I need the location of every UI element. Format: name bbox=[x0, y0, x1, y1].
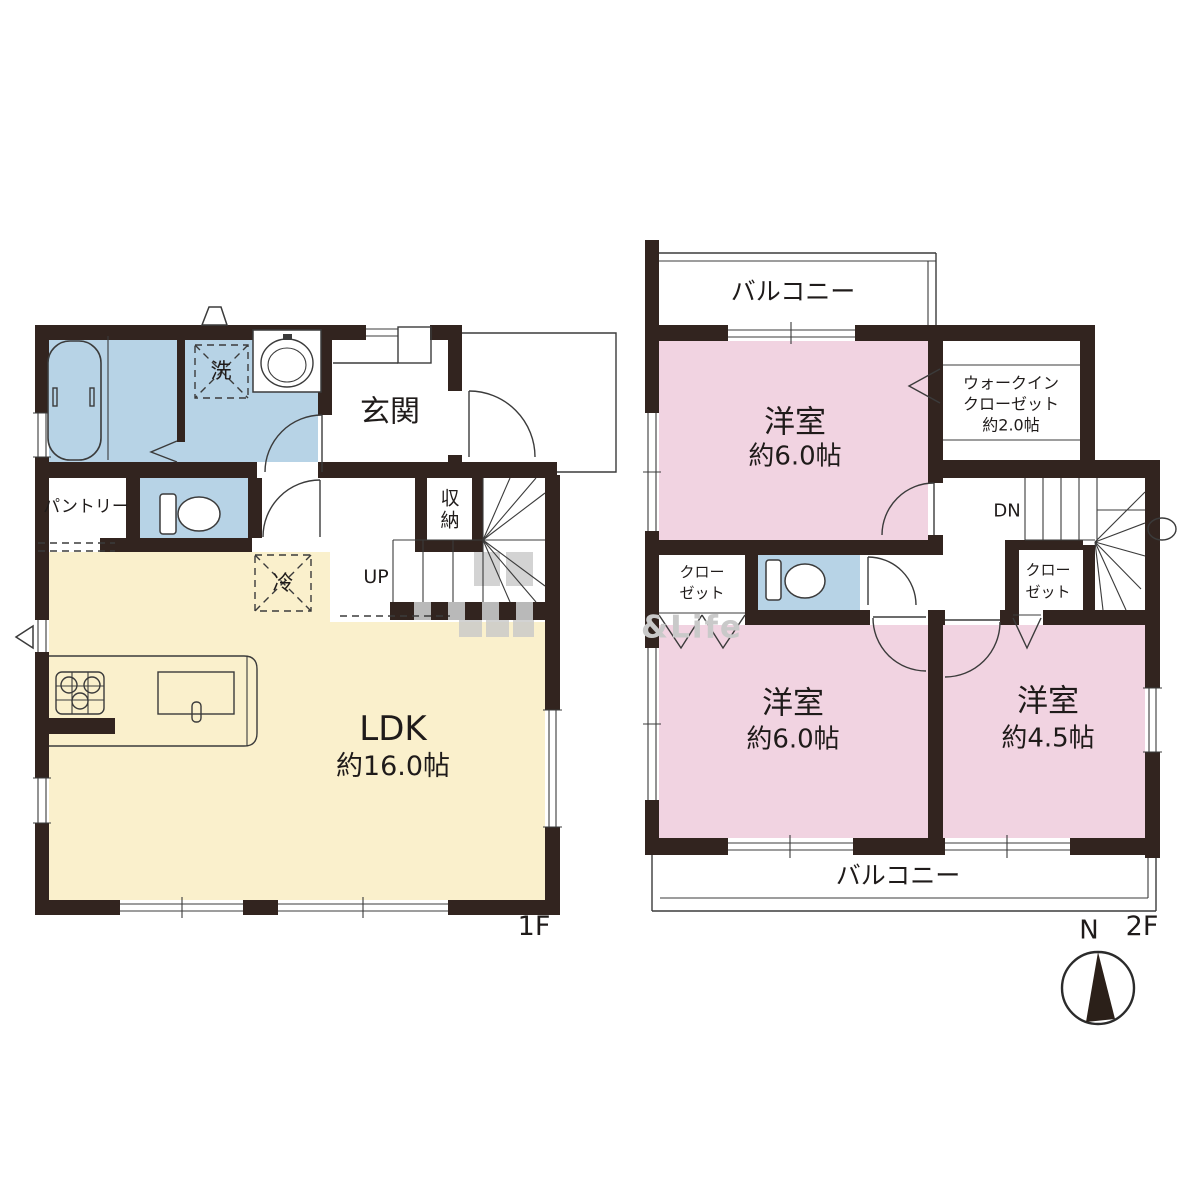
laundry-label: 洗 bbox=[211, 360, 232, 382]
floor1-plan bbox=[16, 307, 616, 918]
floor2-label: 2F bbox=[1126, 913, 1159, 941]
closet-left-label-line2: ゼット bbox=[679, 586, 724, 602]
ldk-size-label: 約16.0帖 bbox=[336, 753, 450, 781]
entrance-label: 玄関 bbox=[360, 396, 420, 428]
compass bbox=[1062, 952, 1134, 1024]
fridge-label: 冷 bbox=[273, 572, 294, 594]
entrance-porch bbox=[462, 333, 616, 472]
balcony-bottom-label: バルコニー bbox=[836, 863, 961, 889]
bathtub-icon bbox=[48, 336, 108, 460]
stairs-up-label: UP bbox=[363, 568, 388, 588]
room-br-size-label: 約4.5帖 bbox=[1001, 725, 1094, 752]
wic-label-line1: ウォークイン bbox=[963, 376, 1059, 393]
vent-icon bbox=[16, 626, 33, 648]
room-br-name-label: 洋室 bbox=[1017, 686, 1079, 719]
closet-left-label-line1: クロー bbox=[679, 565, 724, 581]
room-top-name-label: 洋室 bbox=[764, 407, 826, 440]
closet-right-label-line1: クロー bbox=[1025, 563, 1070, 579]
storage-label: 収納 bbox=[439, 488, 461, 533]
balcony-top-label: バルコニー bbox=[731, 279, 856, 305]
compass-north-label: N bbox=[1079, 917, 1098, 944]
ldk-name-label: LDK bbox=[359, 712, 426, 748]
pantry-label: パントリー bbox=[43, 499, 129, 517]
watermark-logo bbox=[459, 552, 534, 637]
chimney-icon bbox=[202, 307, 227, 325]
wic-size-label: 約2.0帖 bbox=[982, 418, 1039, 435]
entrance-cabinet bbox=[398, 327, 431, 363]
watermark-text: &Life bbox=[641, 612, 743, 645]
toilet-icon-1f bbox=[160, 494, 220, 534]
stairs-down-label: DN bbox=[993, 503, 1020, 522]
wic-label-line2: クローゼット bbox=[963, 397, 1059, 414]
room-bl-size-label: 約6.0帖 bbox=[746, 726, 839, 753]
floor1-label: 1F bbox=[518, 913, 551, 941]
washbasin-icon bbox=[253, 330, 321, 392]
floorplan-page: 玄関 パントリー 収納 UP 洗 冷 LDK 約16.0帖 1F バルコニー 洋… bbox=[0, 0, 1200, 1200]
floorplan-canvas bbox=[0, 0, 1200, 1200]
closet-right-label-line2: ゼット bbox=[1025, 585, 1070, 601]
room-bl-name-label: 洋室 bbox=[762, 688, 824, 721]
room-top-size-label: 約6.0帖 bbox=[748, 443, 841, 470]
toilet-icon-2f bbox=[766, 560, 825, 600]
